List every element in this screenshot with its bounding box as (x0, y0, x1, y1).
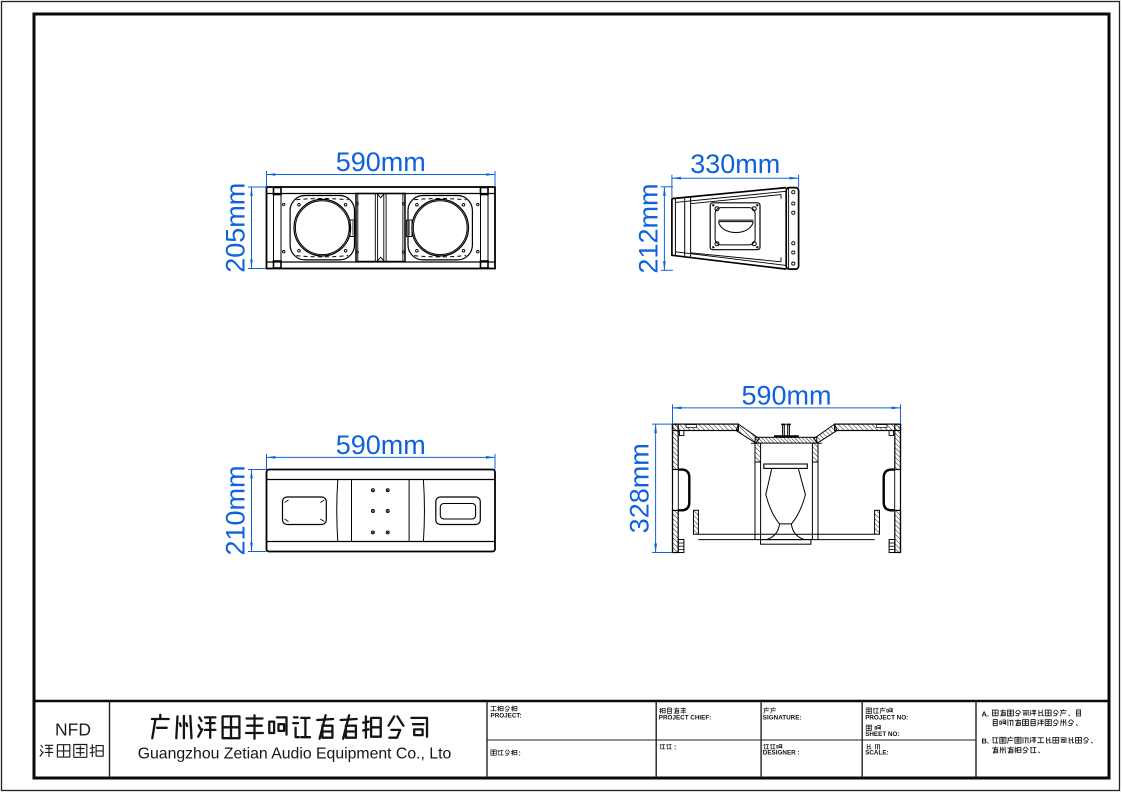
svg-text:SIGNATURE:: SIGNATURE: (763, 715, 802, 722)
svg-text:590mm: 590mm (336, 430, 426, 460)
svg-text:Guangzhou Zetian Audio Equipme: Guangzhou Zetian Audio Equipment Co., Lt… (138, 746, 452, 763)
svg-text:PROJECT CHIEF:: PROJECT CHIEF: (659, 715, 711, 722)
svg-text:210mm: 210mm (221, 465, 251, 555)
svg-text:590mm: 590mm (741, 380, 831, 410)
svg-text::: : (674, 745, 676, 752)
svg-text::: : (519, 750, 521, 757)
svg-text:PROJECT NO:: PROJECT NO: (865, 715, 908, 722)
svg-text:B.: B. (982, 737, 990, 746)
svg-text:SCALE:: SCALE: (865, 749, 888, 756)
svg-text:SHEET NO:: SHEET NO: (865, 731, 899, 738)
svg-text:205mm: 205mm (221, 183, 251, 273)
svg-text:328mm: 328mm (625, 443, 655, 533)
svg-text:PROJECT:: PROJECT: (491, 712, 522, 719)
svg-text:A.: A. (982, 710, 990, 719)
svg-text:212mm: 212mm (633, 184, 663, 274)
svg-text:DESIGNER :: DESIGNER : (763, 749, 800, 756)
svg-text:330mm: 330mm (690, 149, 780, 179)
svg-text:590mm: 590mm (336, 147, 426, 177)
svg-text:NFD: NFD (55, 720, 91, 740)
